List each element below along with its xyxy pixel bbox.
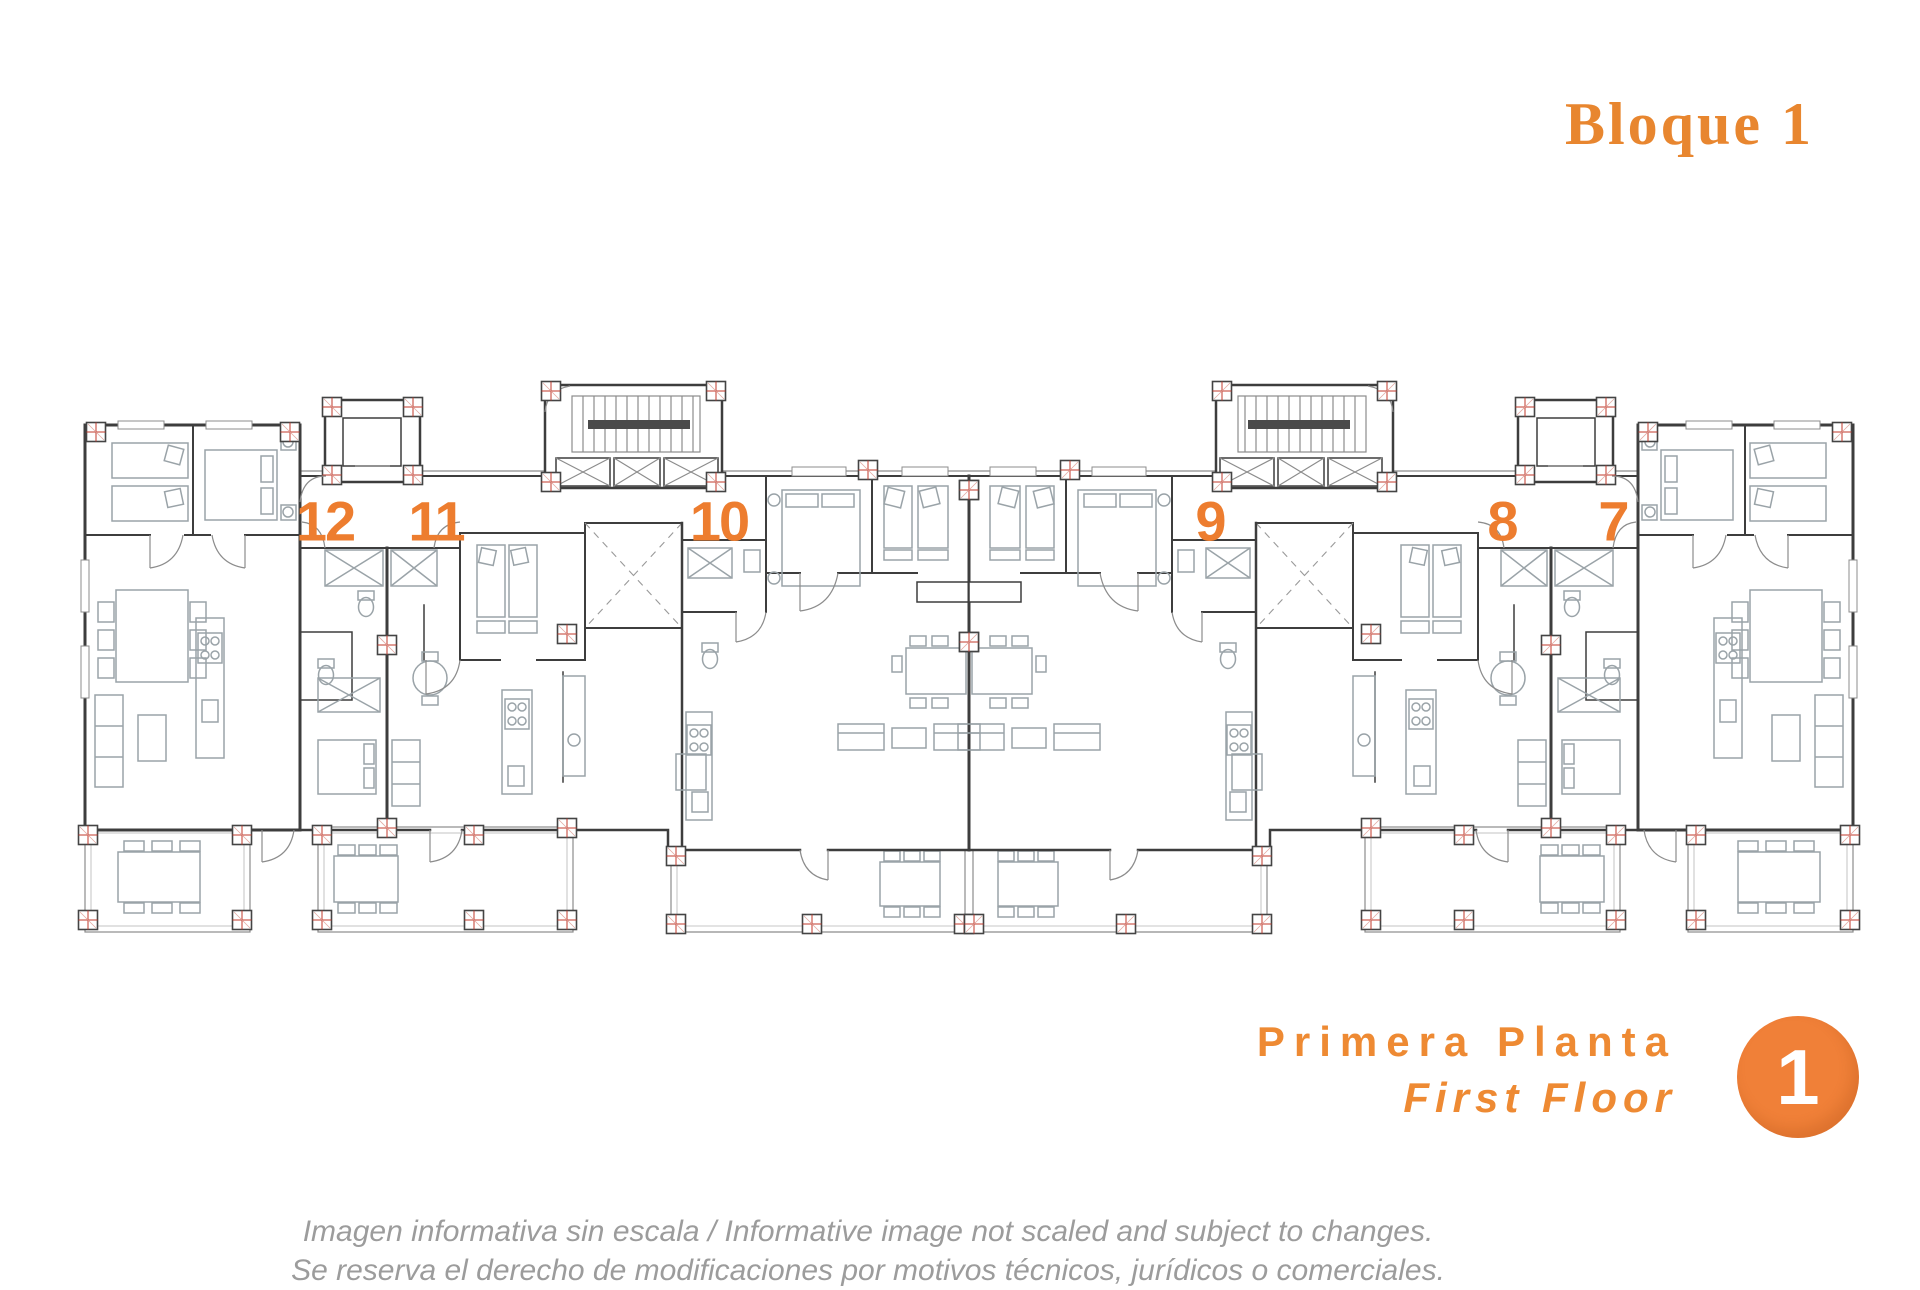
block-title: Bloque 1 [1565, 90, 1814, 159]
disclaimer-line-1: Imagen informativa sin escala / Informat… [168, 1212, 1568, 1251]
disclaimer-line-2: Se reserva el derecho de modificaciones … [168, 1251, 1568, 1290]
unit-number-10: 10 [690, 489, 748, 554]
disclaimer: Imagen informativa sin escala / Informat… [168, 1212, 1568, 1290]
unit-number-7: 7 [1598, 489, 1627, 554]
floor-number-badge: 1 [1737, 1016, 1859, 1138]
building-right-half [958, 382, 1860, 934]
floor-badge-number: 1 [1776, 1032, 1819, 1123]
floor-label-spanish: Primera Planta [1257, 1018, 1677, 1066]
building-left-half [79, 382, 981, 934]
unit-number-8: 8 [1487, 489, 1516, 554]
floor-label-english: First Floor [1257, 1074, 1677, 1122]
unit-number-9: 9 [1195, 489, 1224, 554]
unit-number-11: 11 [408, 489, 463, 554]
unit-number-12: 12 [296, 489, 354, 554]
floor-labels: Primera Planta First Floor [1257, 1018, 1677, 1122]
